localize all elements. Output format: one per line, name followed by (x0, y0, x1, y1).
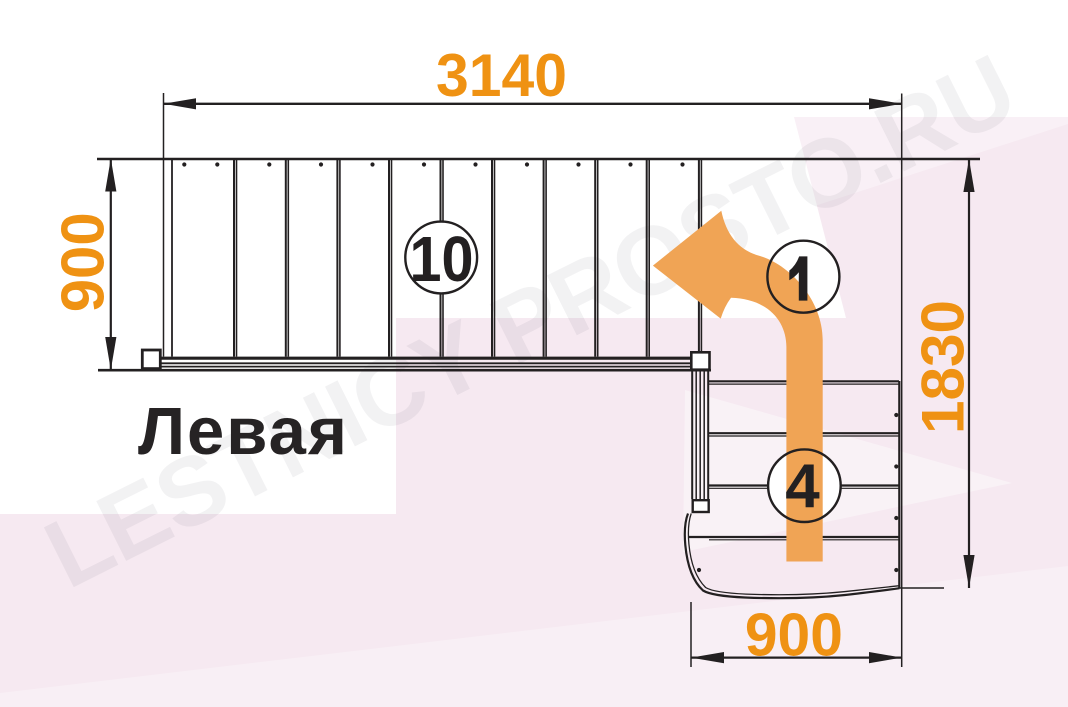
svg-text:10: 10 (410, 223, 474, 295)
svg-text:1830: 1830 (910, 300, 977, 434)
svg-text:900: 900 (50, 212, 117, 312)
svg-text:3140: 3140 (436, 41, 567, 109)
svg-text:Левая: Левая (138, 394, 349, 469)
svg-text:4: 4 (785, 452, 820, 521)
svg-text:900: 900 (745, 602, 843, 669)
